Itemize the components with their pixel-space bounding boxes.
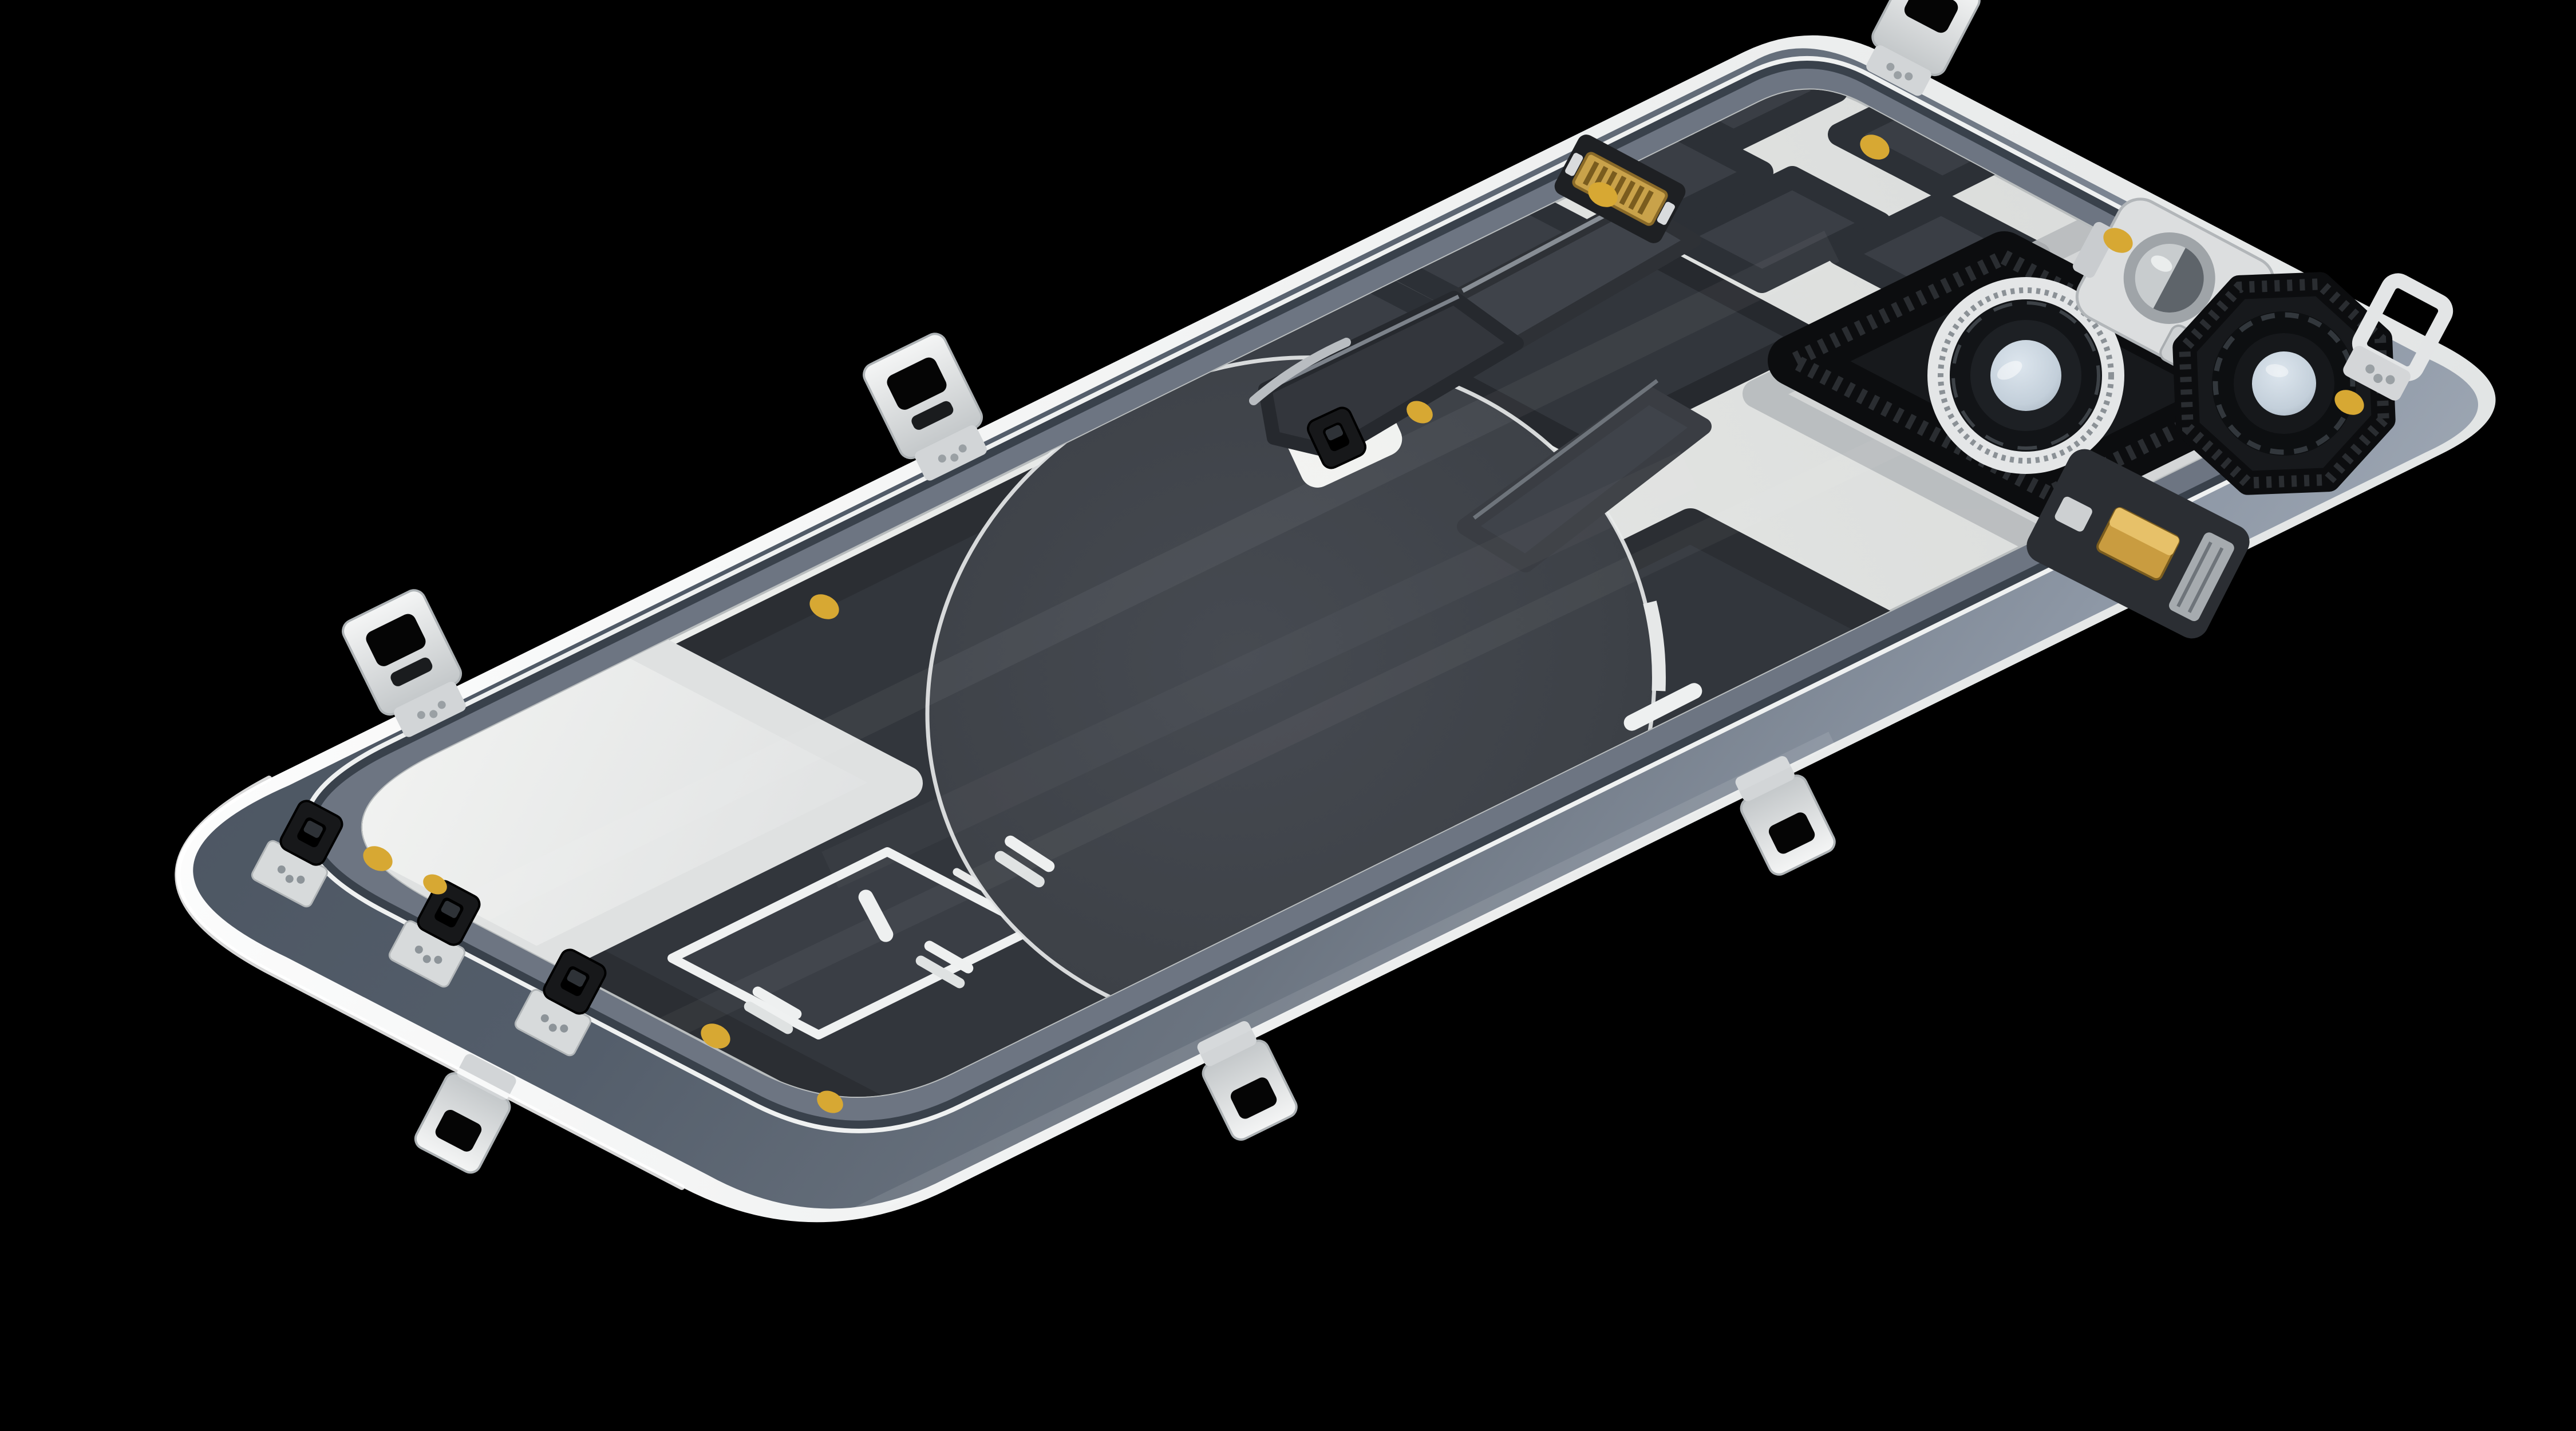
photo-stage: [0, 0, 2576, 1431]
panel-photo: [0, 0, 2576, 1431]
